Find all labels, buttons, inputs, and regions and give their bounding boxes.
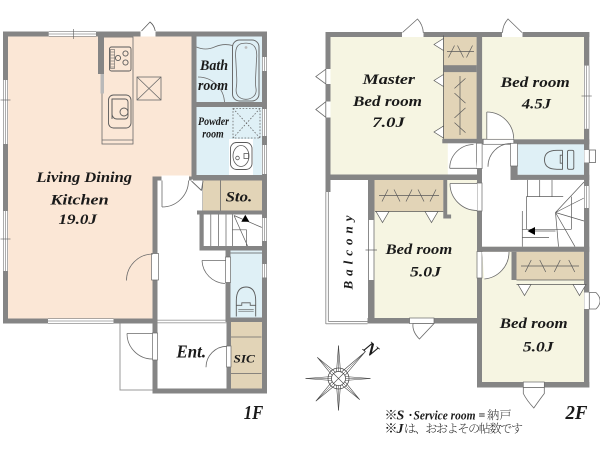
- svg-text:1F: 1F: [244, 402, 264, 424]
- svg-text:Service room: Service room: [414, 409, 476, 423]
- svg-text:Bed room: Bed room: [384, 242, 452, 258]
- svg-text:Powder: Powder: [198, 116, 229, 128]
- svg-text:5.0J: 5.0J: [523, 340, 554, 356]
- svg-text:19.0J: 19.0J: [59, 212, 98, 228]
- svg-text:Bed room: Bed room: [352, 94, 422, 110]
- svg-text:Bed room: Bed room: [499, 316, 568, 332]
- svg-text:5.0J: 5.0J: [410, 265, 442, 281]
- svg-text:Master: Master: [361, 72, 415, 88]
- svg-text:SIC: SIC: [234, 354, 256, 366]
- svg-text:2F: 2F: [565, 402, 589, 424]
- svg-text:7.0J: 7.0J: [372, 115, 405, 131]
- svg-text:Ent.: Ent.: [176, 342, 206, 362]
- svg-text:Living Dining: Living Dining: [35, 170, 132, 186]
- svg-text:4.5J: 4.5J: [521, 96, 552, 112]
- svg-text:J: J: [396, 422, 405, 437]
- svg-text:Sto.: Sto.: [226, 190, 253, 206]
- svg-text:=: =: [479, 408, 486, 422]
- svg-text:room: room: [202, 129, 224, 141]
- svg-text:Bed room: Bed room: [500, 75, 570, 91]
- svg-text:room: room: [198, 78, 228, 94]
- svg-text:Kitchen: Kitchen: [49, 192, 109, 208]
- svg-text:Bath: Bath: [199, 58, 228, 74]
